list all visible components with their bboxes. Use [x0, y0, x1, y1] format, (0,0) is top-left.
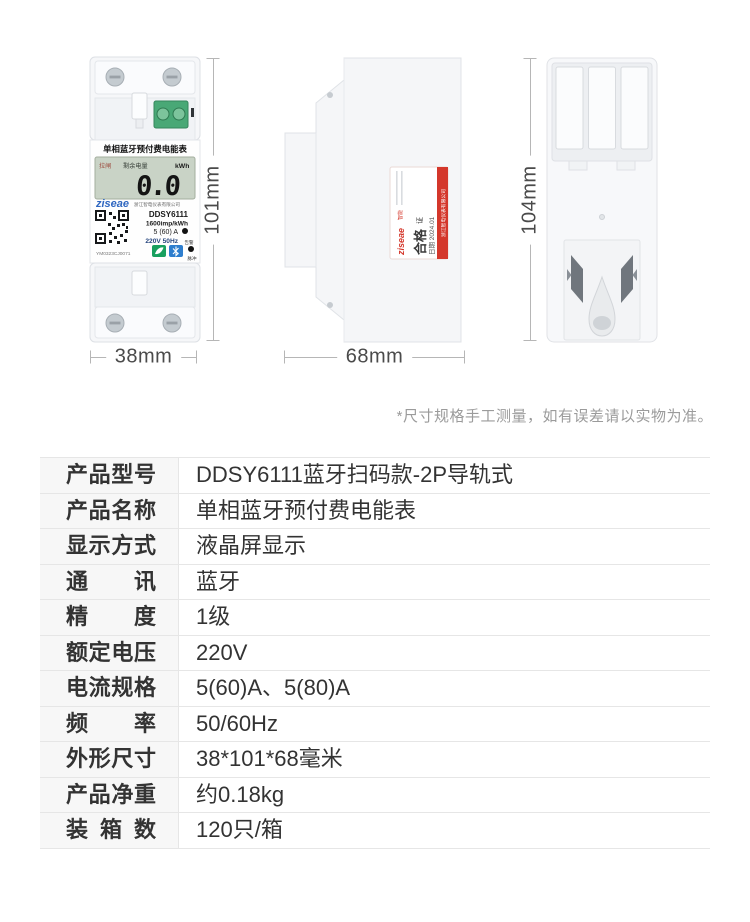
lcd-unit: kWh: [175, 163, 189, 170]
spec-label: 电流规格: [40, 671, 179, 706]
spec-label: 产品型号: [40, 458, 179, 493]
certificate-sticker: ziseae 智能 合格 证 日期 2024.01 浙江智电仪表有限公司: [390, 167, 448, 259]
sticker-brand-suffix: 智能: [397, 210, 404, 220]
lcd-status: 拉闸: [99, 162, 111, 170]
spec-value: 单相蓝牙预付费电能表: [179, 494, 710, 529]
sticker-brand: ziseae: [396, 228, 406, 256]
alarm-led-icon: [182, 228, 188, 234]
meter-current: 5 (60) A: [153, 229, 178, 236]
spec-label: 产品净重: [40, 778, 179, 813]
product-page: 单相蓝牙预付费电能表 拉闸 剩余电量 kWh 0.0 ziseae 浙江智电仪表…: [0, 0, 750, 922]
brand-logo: ziseae: [95, 198, 129, 210]
cert-title-sub: 证: [416, 217, 424, 224]
spec-label: 产品名称: [40, 494, 179, 529]
spec-label: 频率: [40, 707, 179, 742]
alarm-label: 告警: [185, 239, 194, 246]
meter-model: DDSY6111: [149, 210, 189, 219]
qr-code-icon: [95, 210, 129, 244]
spec-label: 额定电压: [40, 636, 179, 671]
spec-value: 50/60Hz: [179, 707, 710, 742]
spec-row: 装箱数120只/箱: [40, 813, 710, 849]
spec-row: 电流规格5(60)A、5(80)A: [40, 671, 710, 707]
lcd-display: 拉闸 剩余电量 kWh 0.0: [95, 157, 195, 202]
din-rail-clip: [564, 240, 640, 340]
lcd-label: 剩余电量: [123, 162, 148, 170]
spec-row: 通讯蓝牙: [40, 565, 710, 601]
meter-voltage: 220V 50Hz: [145, 238, 178, 245]
meter-side-photo: ziseae 智能 合格 证 日期 2024.01 浙江智电仪表有限公司: [282, 55, 468, 345]
spec-label: 外形尺寸: [40, 742, 179, 777]
meter-title: 单相蓝牙预付费电能表: [103, 144, 187, 154]
spec-value: 220V: [179, 636, 710, 671]
meter-front-photo: 单相蓝牙预付费电能表 拉闸 剩余电量 kWh 0.0 ziseae 浙江智电仪表…: [88, 55, 202, 344]
pulse-led-icon: [188, 246, 194, 252]
meter-back-photo: [545, 55, 659, 345]
spec-label: 显示方式: [40, 529, 179, 564]
lcd-value: 0.0: [135, 171, 181, 202]
cert-date: 日期 2024.01: [428, 216, 436, 255]
dimension-side-width: 68mm: [284, 349, 465, 365]
measurement-note: *尺寸规格手工测量，如有误差请以实物为准。: [397, 405, 713, 426]
front-bottom-cover: [90, 263, 200, 342]
front-face: 单相蓝牙预付费电能表 拉闸 剩余电量 kWh 0.0 ziseae 浙江智电仪表…: [90, 140, 200, 263]
spec-label: 精度: [40, 600, 179, 635]
spec-value: 蓝牙: [179, 565, 710, 600]
spec-value: 120只/箱: [179, 813, 710, 848]
spec-row: 产品净重约0.18kg: [40, 778, 710, 814]
spec-value: 1级: [179, 600, 710, 635]
spec-value: 约0.18kg: [179, 778, 710, 813]
dimension-front-width: 38mm: [90, 349, 197, 365]
spec-row: 产品型号DDSY6111蓝牙扫码款-2P导轨式: [40, 458, 710, 494]
spec-row: 额定电压220V: [40, 636, 710, 672]
spec-table: 产品型号DDSY6111蓝牙扫码款-2P导轨式产品名称单相蓝牙预付费电能表显示方…: [40, 457, 710, 849]
spec-row: 显示方式液晶屏显示: [40, 529, 710, 565]
spec-value: 5(60)A、5(80)A: [179, 671, 710, 706]
dimension-back-height-label: 104mm: [519, 155, 542, 244]
spec-label: 装箱数: [40, 813, 179, 848]
cert-company-band: 浙江智电仪表有限公司: [440, 189, 447, 237]
front-top-cover: [90, 57, 200, 140]
cert-title: 合格: [413, 228, 428, 255]
dimension-front-height-label: 101mm: [202, 155, 225, 244]
spec-row: 精度1级: [40, 600, 710, 636]
vent-slots: [556, 67, 648, 149]
spec-label: 通讯: [40, 565, 179, 600]
dimension-front-height: 101mm: [206, 58, 220, 341]
dimension-front-width-label: 38mm: [106, 346, 182, 369]
spec-value: 液晶屏显示: [179, 529, 710, 564]
spec-row: 频率50/60Hz: [40, 707, 710, 743]
screw-icon: [327, 92, 333, 98]
screw-icon: [327, 302, 333, 308]
spec-row: 产品名称单相蓝牙预付费电能表: [40, 494, 710, 530]
serial-number: YM0323CJ0071: [96, 251, 131, 257]
company-name: 浙江智电仪表有限公司: [134, 201, 180, 208]
dimension-back-height: 104mm: [523, 58, 537, 341]
spec-value: DDSY6111蓝牙扫码款-2P导轨式: [179, 458, 710, 493]
pulse-label: 脉冲: [188, 255, 197, 262]
meter-constant: 1600imp/kWh: [146, 221, 188, 228]
spec-row: 外形尺寸38*101*68毫米: [40, 742, 710, 778]
dimension-side-width-label: 68mm: [337, 346, 413, 369]
terminal-block: [154, 101, 188, 128]
spec-value: 38*101*68毫米: [179, 742, 710, 777]
